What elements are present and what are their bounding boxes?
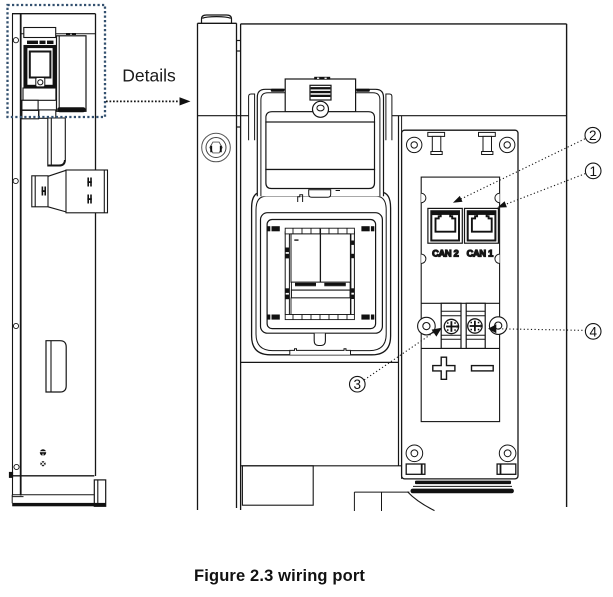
svg-text:Figure 2.3 wiring port: Figure 2.3 wiring port [194,567,365,585]
svg-text:1: 1 [589,164,597,179]
svg-text:4: 4 [589,324,597,339]
svg-text:CAN 2: CAN 2 [432,249,459,259]
svg-text:2: 2 [589,128,597,143]
svg-text:Details: Details [122,65,176,85]
svg-text:3: 3 [354,377,362,392]
svg-text:CAN 1: CAN 1 [467,249,494,259]
